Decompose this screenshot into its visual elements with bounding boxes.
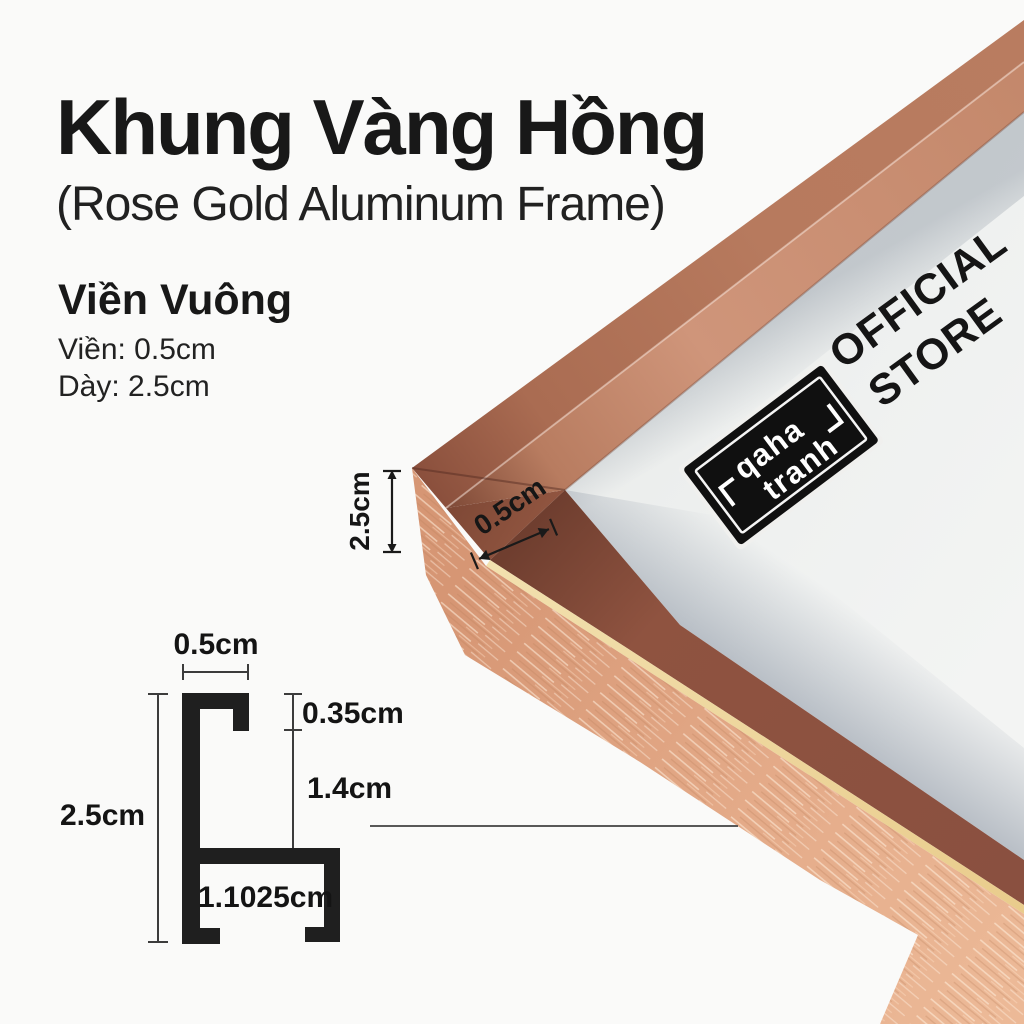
profile-right-foot <box>305 927 340 942</box>
diagram-label-inner-height: 1.4cm <box>307 772 392 806</box>
profile-left-foot <box>182 928 220 944</box>
measure-top-width-tick-left <box>182 664 184 680</box>
measure-lip-depth-tick-bottom <box>284 729 302 731</box>
measure-top-width-line <box>183 671 249 673</box>
poster-canvas: 2.5cm 0.5cm OFFICIAL STORE qaha <box>0 0 1024 1024</box>
leader-line-to-photo <box>370 825 738 827</box>
measure-total-height-tick-bottom <box>148 941 168 943</box>
diagram-label-base-width: 1.1025cm <box>198 881 333 915</box>
diagram-label-total-height: 2.5cm <box>60 799 145 833</box>
diagram-label-lip-depth: 0.35cm <box>302 697 404 731</box>
measure-total-height-tick-top <box>148 693 168 695</box>
measure-top-width-tick-right <box>247 664 249 680</box>
measure-lip-depth-line <box>292 694 294 848</box>
measure-lip-depth-tick-top <box>284 693 302 695</box>
profile-top-lip <box>233 693 249 731</box>
profile-base-bar <box>182 848 340 864</box>
profile-diagram: 0.5cm 0.35cm 1.4cm 2.5cm 1.1025cm <box>0 0 1024 1024</box>
diagram-label-top-width: 0.5cm <box>160 628 272 662</box>
measure-total-height-line <box>157 694 159 943</box>
